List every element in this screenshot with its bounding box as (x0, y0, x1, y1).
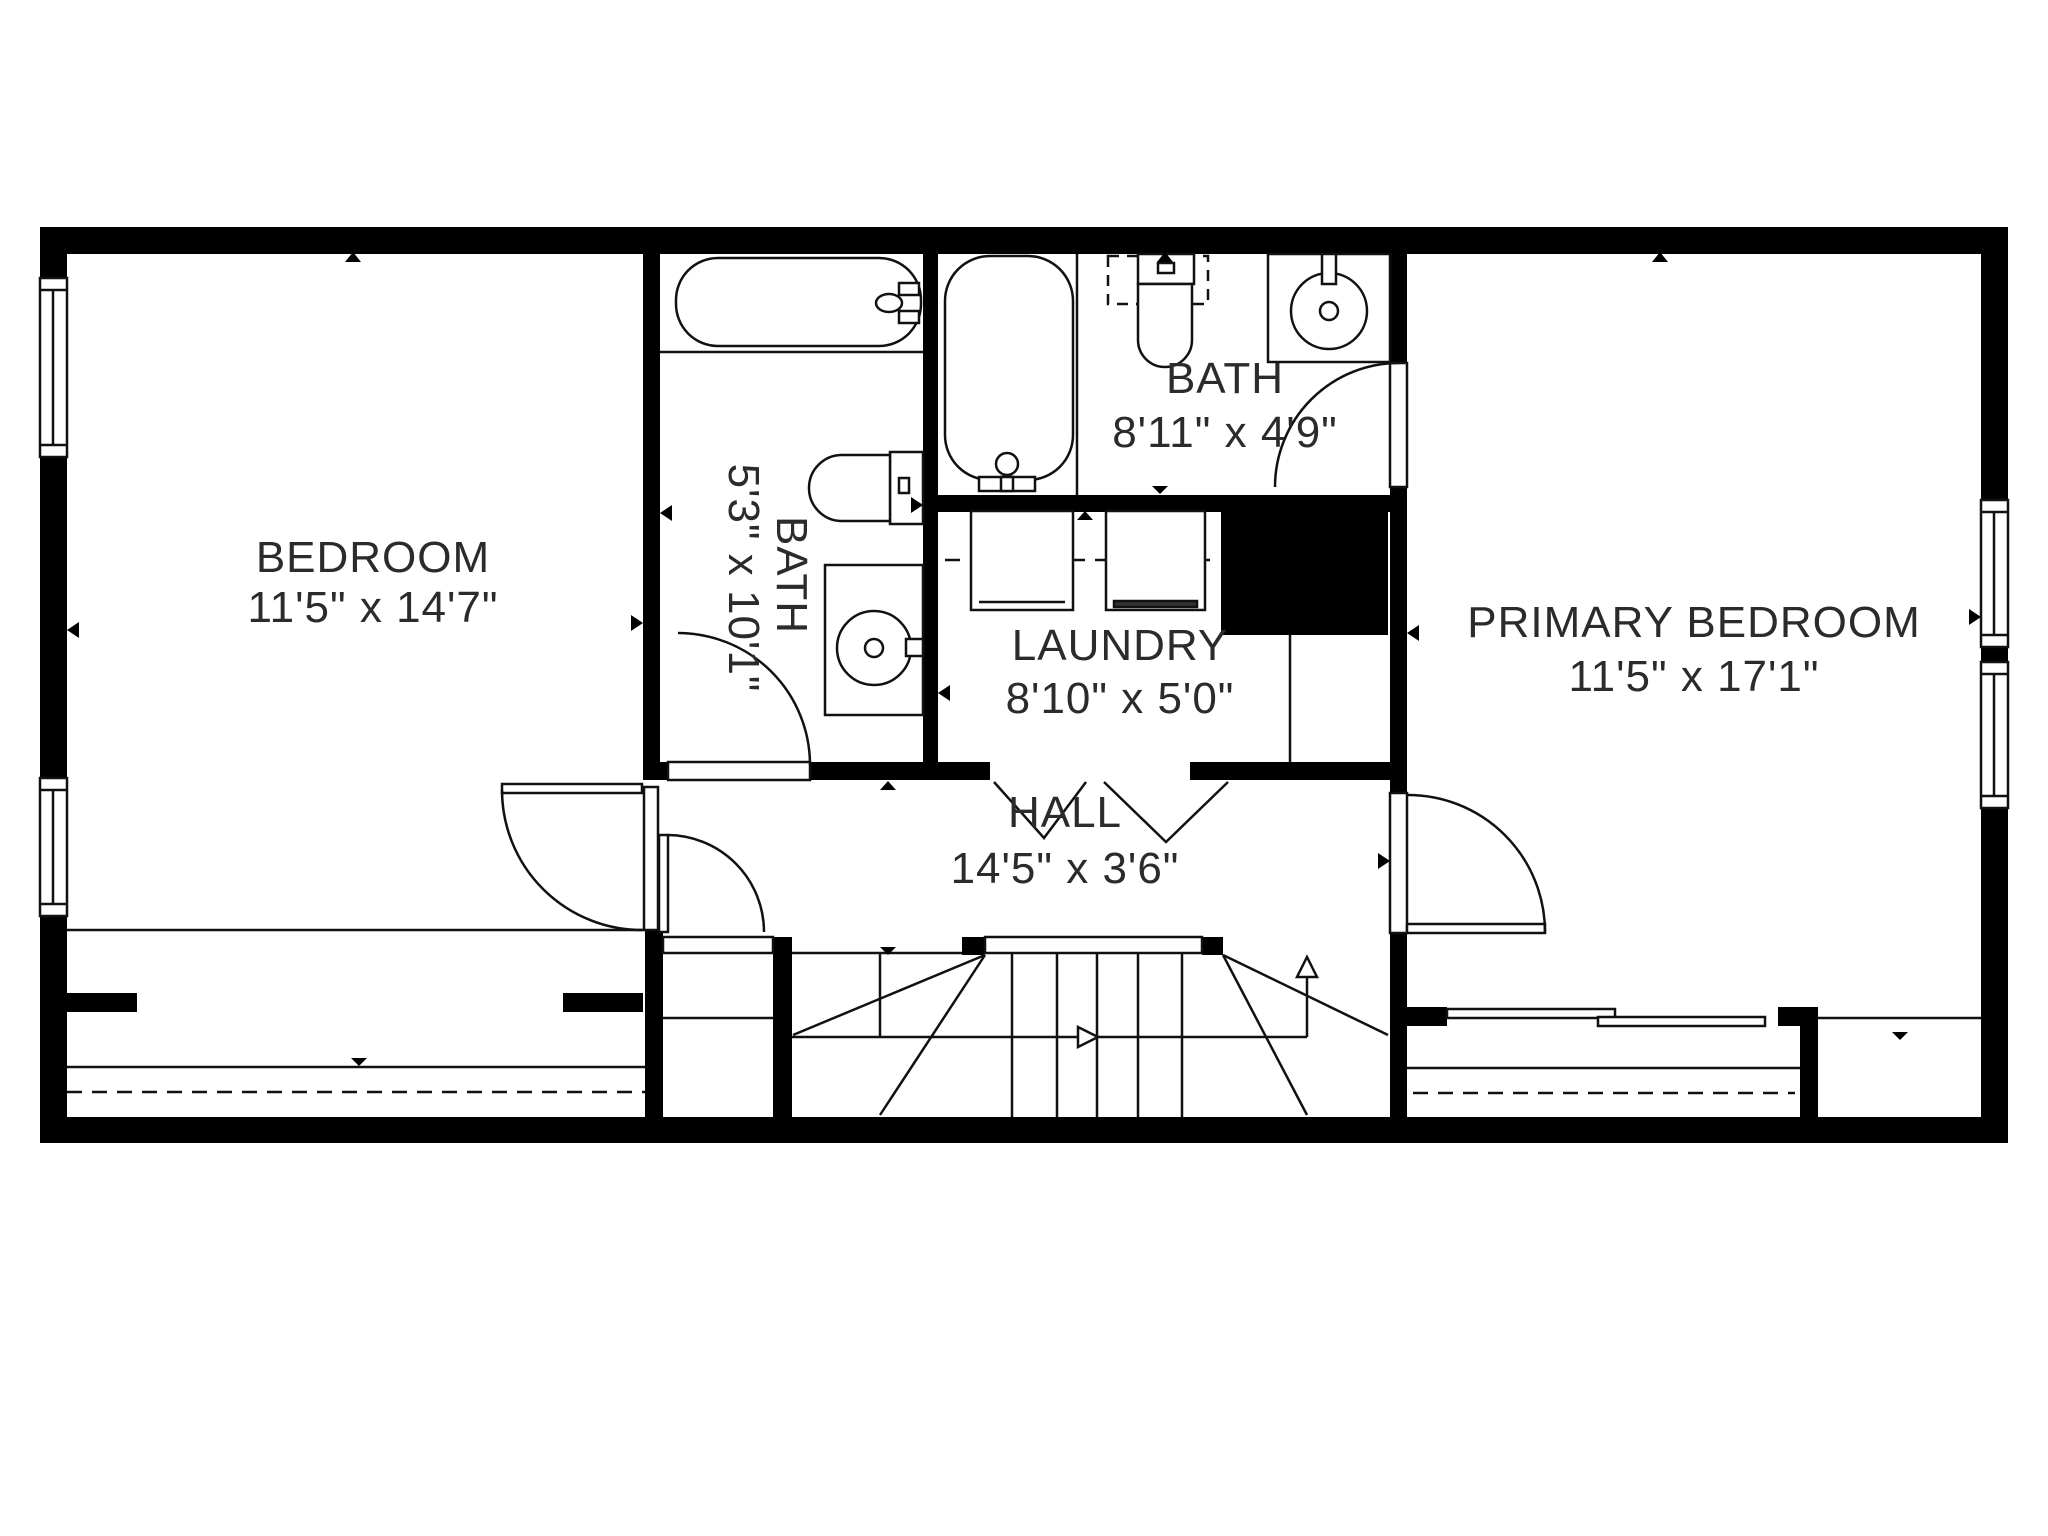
wall-marker-icon (1378, 853, 1390, 869)
hall-dims: 14'5" x 3'6" (951, 844, 1180, 893)
window-icon (40, 778, 67, 916)
bathtub-icon (945, 256, 1073, 491)
door-swing-icon (502, 784, 642, 930)
wall-marker-icon (1969, 609, 1981, 625)
stairs-up-icon (792, 953, 1388, 1117)
closet-slider-icon (1447, 1009, 1765, 1026)
hall-label: HALL (1008, 788, 1122, 837)
wall-marker-icon (1892, 1032, 1908, 1040)
bedroom-dims: 11'5" x 14'7" (247, 583, 498, 632)
primary-bedroom-dims: 11'5" x 17'1" (1568, 652, 1819, 701)
wall-marker-icon (1152, 486, 1168, 494)
laundry-label: LAUNDRY (1012, 621, 1228, 670)
window-icon (1981, 662, 2008, 808)
door-swing-icon (659, 835, 764, 932)
door-swing-icon (1407, 795, 1545, 933)
floor-plan-page: BEDROOM 11'5" x 14'7" BATH 5'3" x 10'1" … (0, 0, 2048, 1536)
wall-marker-icon (67, 622, 79, 638)
bathtub-icon (676, 258, 921, 346)
vanity-sink-icon (1268, 254, 1390, 362)
floor-plan: BEDROOM 11'5" x 14'7" BATH 5'3" x 10'1" … (0, 0, 2048, 1536)
toilet-icon (809, 452, 923, 524)
window-icon (1981, 500, 2008, 647)
bath-top-dims: 8'11" x 4'9" (1112, 408, 1338, 457)
wall-marker-icon (1407, 625, 1419, 641)
window-icon (40, 278, 67, 457)
bath-main-fixtures (676, 258, 923, 715)
toilet-icon (1108, 254, 1208, 367)
washer-icon (971, 511, 1073, 610)
wall-marker-icon (938, 685, 950, 701)
bath-main-dims: 5'3" x 10'1" (719, 464, 768, 693)
wall-marker-icon (1077, 511, 1093, 520)
primary-bedroom-label: PRIMARY BEDROOM (1467, 598, 1920, 647)
wall-marker-icon (631, 615, 643, 631)
bedroom-label: BEDROOM (256, 533, 490, 582)
dryer-icon (1106, 511, 1205, 610)
laundry-dims: 8'10" x 5'0" (1006, 674, 1235, 723)
laundry-fixtures (971, 511, 1205, 610)
bath-top-label: BATH (1166, 354, 1284, 403)
interior-walls (67, 254, 1818, 1117)
wall-marker-icon (351, 1058, 367, 1066)
bath-main-label: BATH (767, 516, 816, 634)
vanity-sink-icon (825, 565, 923, 715)
wall-marker-icon (880, 781, 896, 790)
wall-marker-icon (660, 505, 672, 521)
